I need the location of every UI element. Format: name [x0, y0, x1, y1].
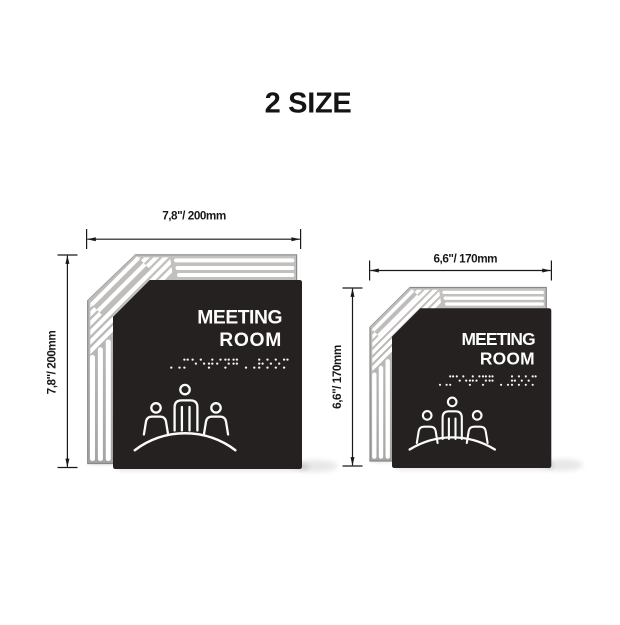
svg-text:MEETING: MEETING — [197, 307, 282, 328]
svg-text:2 SIZE: 2 SIZE — [265, 88, 352, 120]
svg-text:ROOM: ROOM — [480, 348, 535, 368]
svg-text:6,6"/ 170mm: 6,6"/ 170mm — [433, 252, 497, 265]
svg-text:ROOM: ROOM — [219, 330, 282, 351]
svg-text:6,6"/ 170mm: 6,6"/ 170mm — [331, 345, 344, 409]
svg-text:7,8"/ 200mm: 7,8"/ 200mm — [46, 331, 59, 395]
svg-text:MEETING: MEETING — [462, 329, 536, 349]
svg-text:7,8"/ 200mm: 7,8"/ 200mm — [162, 210, 226, 223]
